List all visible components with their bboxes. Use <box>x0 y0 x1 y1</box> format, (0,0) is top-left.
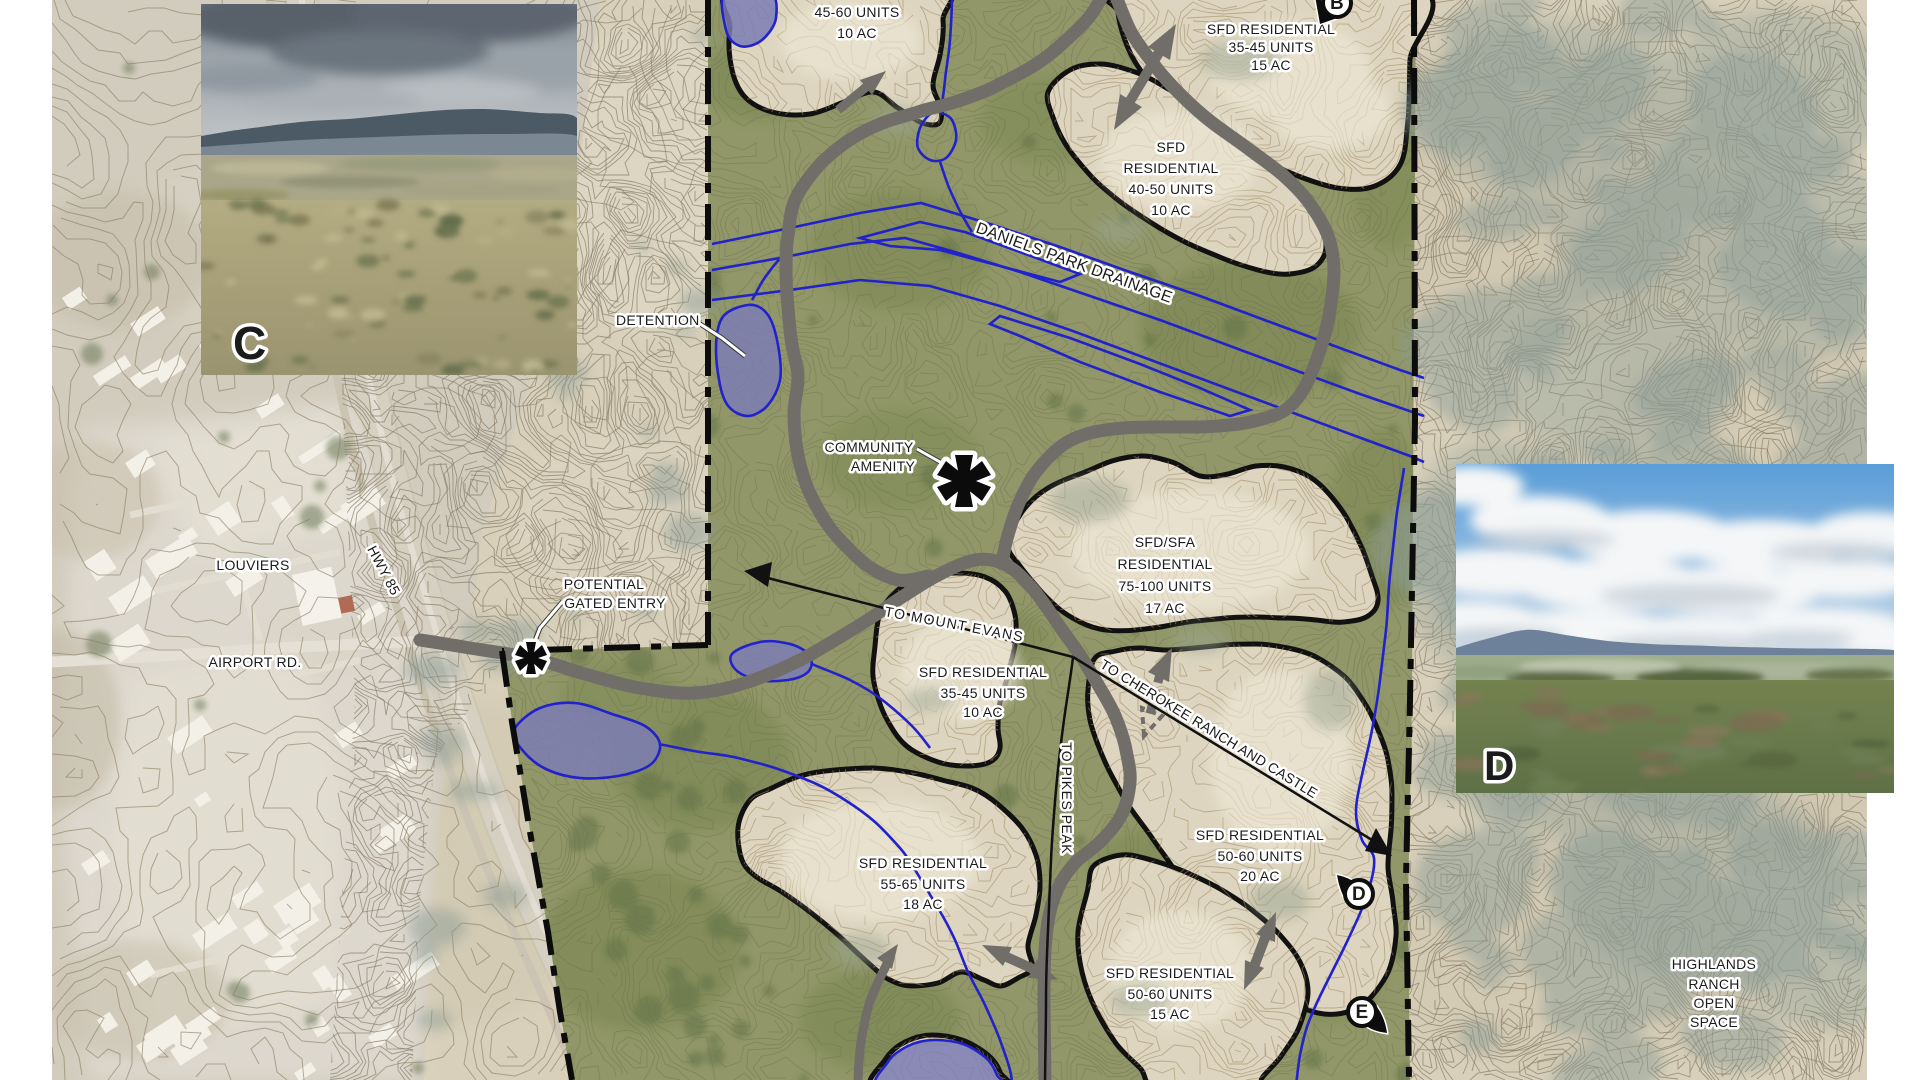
svg-text:75-100 UNITS: 75-100 UNITS <box>1118 578 1211 594</box>
svg-text:18 AC: 18 AC <box>903 896 943 912</box>
svg-text:20 AC: 20 AC <box>1240 868 1280 884</box>
svg-text:17 AC: 17 AC <box>1145 600 1185 616</box>
svg-text:SFD RESIDENTIAL: SFD RESIDENTIAL <box>1207 21 1335 37</box>
svg-text:10 AC: 10 AC <box>963 704 1003 720</box>
svg-text:RESIDENTIAL: RESIDENTIAL <box>1123 160 1218 176</box>
svg-text:35-45 UNITS: 35-45 UNITS <box>1229 39 1314 55</box>
svg-text:50-60 UNITS: 50-60 UNITS <box>1128 986 1213 1002</box>
svg-text:SFD RESIDENTIAL: SFD RESIDENTIAL <box>1196 827 1324 843</box>
svg-text:10 AC: 10 AC <box>1151 202 1191 218</box>
svg-text:45-60 UNITS: 45-60 UNITS <box>815 4 900 20</box>
svg-text:OPEN: OPEN <box>1694 995 1735 1011</box>
svg-text:D: D <box>1352 884 1366 905</box>
svg-text:B: B <box>1330 0 1344 14</box>
svg-text:15 AC: 15 AC <box>1150 1006 1190 1022</box>
svg-text:COMMUNITY: COMMUNITY <box>824 439 913 455</box>
svg-text:50-60 UNITS: 50-60 UNITS <box>1218 848 1303 864</box>
svg-text:SFD RESIDENTIAL: SFD RESIDENTIAL <box>859 855 987 871</box>
svg-text:40-50 UNITS: 40-50 UNITS <box>1129 181 1214 197</box>
svg-text:AIRPORT RD.: AIRPORT RD. <box>208 654 301 670</box>
svg-text:D: D <box>1484 742 1515 789</box>
svg-text:GATED ENTRY: GATED ENTRY <box>564 595 666 611</box>
svg-text:POTENTIAL: POTENTIAL <box>564 576 645 592</box>
svg-text:LOUVIERS: LOUVIERS <box>216 557 289 573</box>
svg-text:E: E <box>1356 1002 1369 1023</box>
svg-text:SFD RESIDENTIAL: SFD RESIDENTIAL <box>1106 965 1234 981</box>
svg-text:TO PIKES PEAK: TO PIKES PEAK <box>1059 742 1075 854</box>
svg-text:35-45 UNITS: 35-45 UNITS <box>941 685 1026 701</box>
svg-text:SFD/SFA: SFD/SFA <box>1135 534 1196 550</box>
svg-text:SFD: SFD <box>1157 139 1186 155</box>
svg-text:SFD RESIDENTIAL: SFD RESIDENTIAL <box>919 664 1047 680</box>
svg-text:10 AC: 10 AC <box>837 25 877 41</box>
svg-text:AMENITY: AMENITY <box>851 458 916 474</box>
svg-text:C: C <box>233 317 267 369</box>
svg-text:HIGHLANDS: HIGHLANDS <box>1672 956 1756 972</box>
svg-text:15 AC: 15 AC <box>1251 57 1291 73</box>
svg-text:DETENTION: DETENTION <box>616 312 700 328</box>
svg-text:RESIDENTIAL: RESIDENTIAL <box>1117 556 1212 572</box>
svg-text:55-65 UNITS: 55-65 UNITS <box>881 876 966 892</box>
svg-text:RANCH: RANCH <box>1688 976 1739 992</box>
svg-text:SPACE: SPACE <box>1690 1014 1738 1030</box>
